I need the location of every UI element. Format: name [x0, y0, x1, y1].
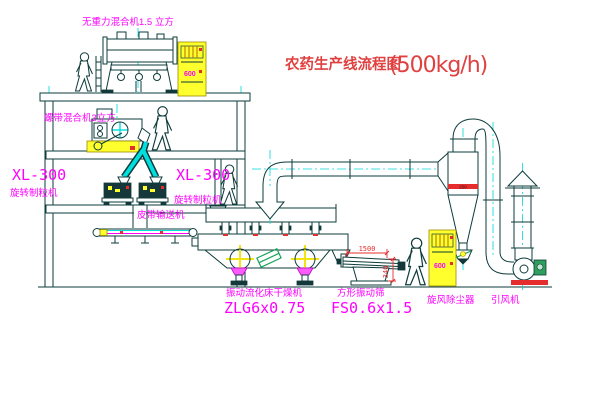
worker-second-floor [152, 107, 171, 150]
label-dryer-name: 振动流化床干燥机 [226, 287, 303, 299]
label-gravity-mixer: 无重力混合机1.5 立方 [82, 16, 174, 28]
belt-conveyor [93, 229, 197, 244]
cyclone-band-text: 250 [459, 185, 467, 190]
worker-roof [76, 53, 93, 91]
label-screen-name: 方形振动筛 [337, 287, 385, 299]
label-screen-model: FS0.6x1.5 [331, 299, 412, 317]
dim-340-text: 340 [382, 266, 390, 279]
diagram-title-capacity: (500kg/h) [389, 53, 487, 78]
diagram-canvas: 250 [0, 0, 600, 403]
vibrating-screen: 1500 340 [341, 245, 405, 285]
control-cabinet-right: 600 [429, 230, 456, 286]
cabinet-top-text: 600 [184, 71, 196, 78]
dryer-foot-right [297, 268, 313, 285]
cabinet-right-text: 600 [434, 263, 446, 270]
granulator-right [137, 177, 168, 205]
label-granulator-right-model: XL-300 [176, 166, 230, 184]
control-cabinet-top: 600 [178, 42, 206, 96]
fan-base [511, 280, 548, 285]
label-ribbon-mixer: 螺带混合机3立方 [44, 112, 116, 124]
label-fan: 引风机 [491, 294, 520, 306]
label-dryer-model: ZLG6x0.75 [224, 299, 305, 317]
label-belt-conveyor: 皮带输送机 [137, 209, 185, 221]
roof-slab [40, 93, 250, 101]
label-cyclone: 旋风除尘器 [427, 294, 475, 306]
label-granulator-right-name: 旋转制粒机 [174, 194, 222, 206]
diagram-title: 农药生产线流程图 [284, 55, 401, 73]
gravity-free-mixer [96, 28, 190, 95]
dim-1500-text: 1500 [359, 245, 376, 253]
label-granulator-left-name: 旋转制粒机 [10, 187, 58, 199]
process-flow-diagram: 250 [0, 0, 600, 403]
label-granulator-left-model: XL-300 [12, 166, 66, 184]
granulator-left [102, 177, 133, 205]
ribbon-mixer [87, 104, 150, 152]
induced-draft-fan [511, 248, 548, 285]
worker-ground [406, 238, 427, 285]
dimension-1500: 1500 [345, 245, 389, 258]
